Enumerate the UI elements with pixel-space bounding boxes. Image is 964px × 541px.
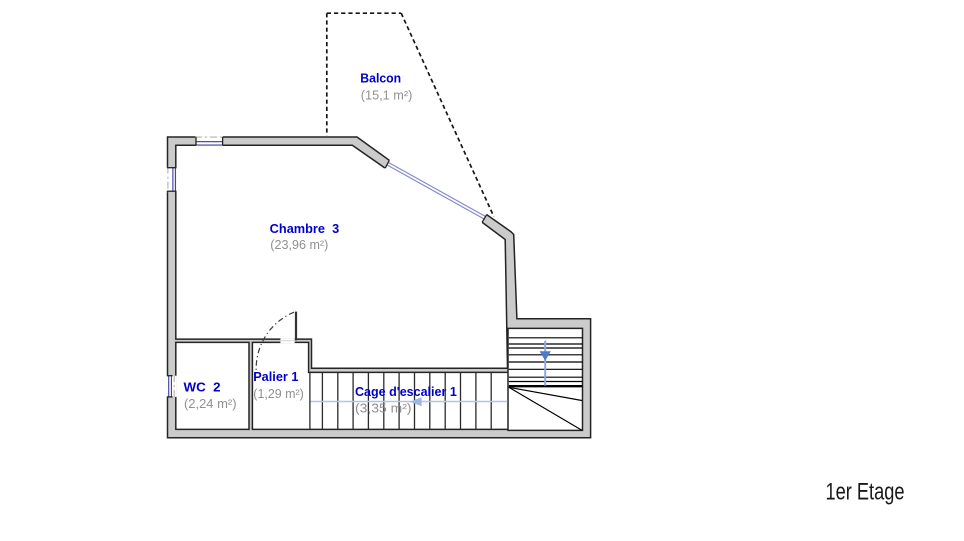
svg-text:(2,24 m²): (2,24 m²): [184, 397, 237, 411]
svg-text:(15,1 m²): (15,1 m²): [361, 88, 413, 103]
svg-text:Palier 1: Palier 1: [253, 369, 298, 384]
svg-text:1er Etage: 1er Etage: [826, 478, 905, 505]
svg-text:(1,29 m²): (1,29 m²): [253, 387, 303, 401]
svg-text:Cage d'escalier 1: Cage d'escalier 1: [355, 385, 457, 399]
svg-text:Chambre 3: Chambre 3: [270, 222, 340, 236]
svg-text:Balcon: Balcon: [360, 70, 401, 85]
svg-text:(23,96 m²): (23,96 m²): [270, 238, 328, 252]
svg-text:(3,35 m²): (3,35 m²): [355, 401, 412, 415]
svg-text:WC 2: WC 2: [184, 381, 221, 395]
